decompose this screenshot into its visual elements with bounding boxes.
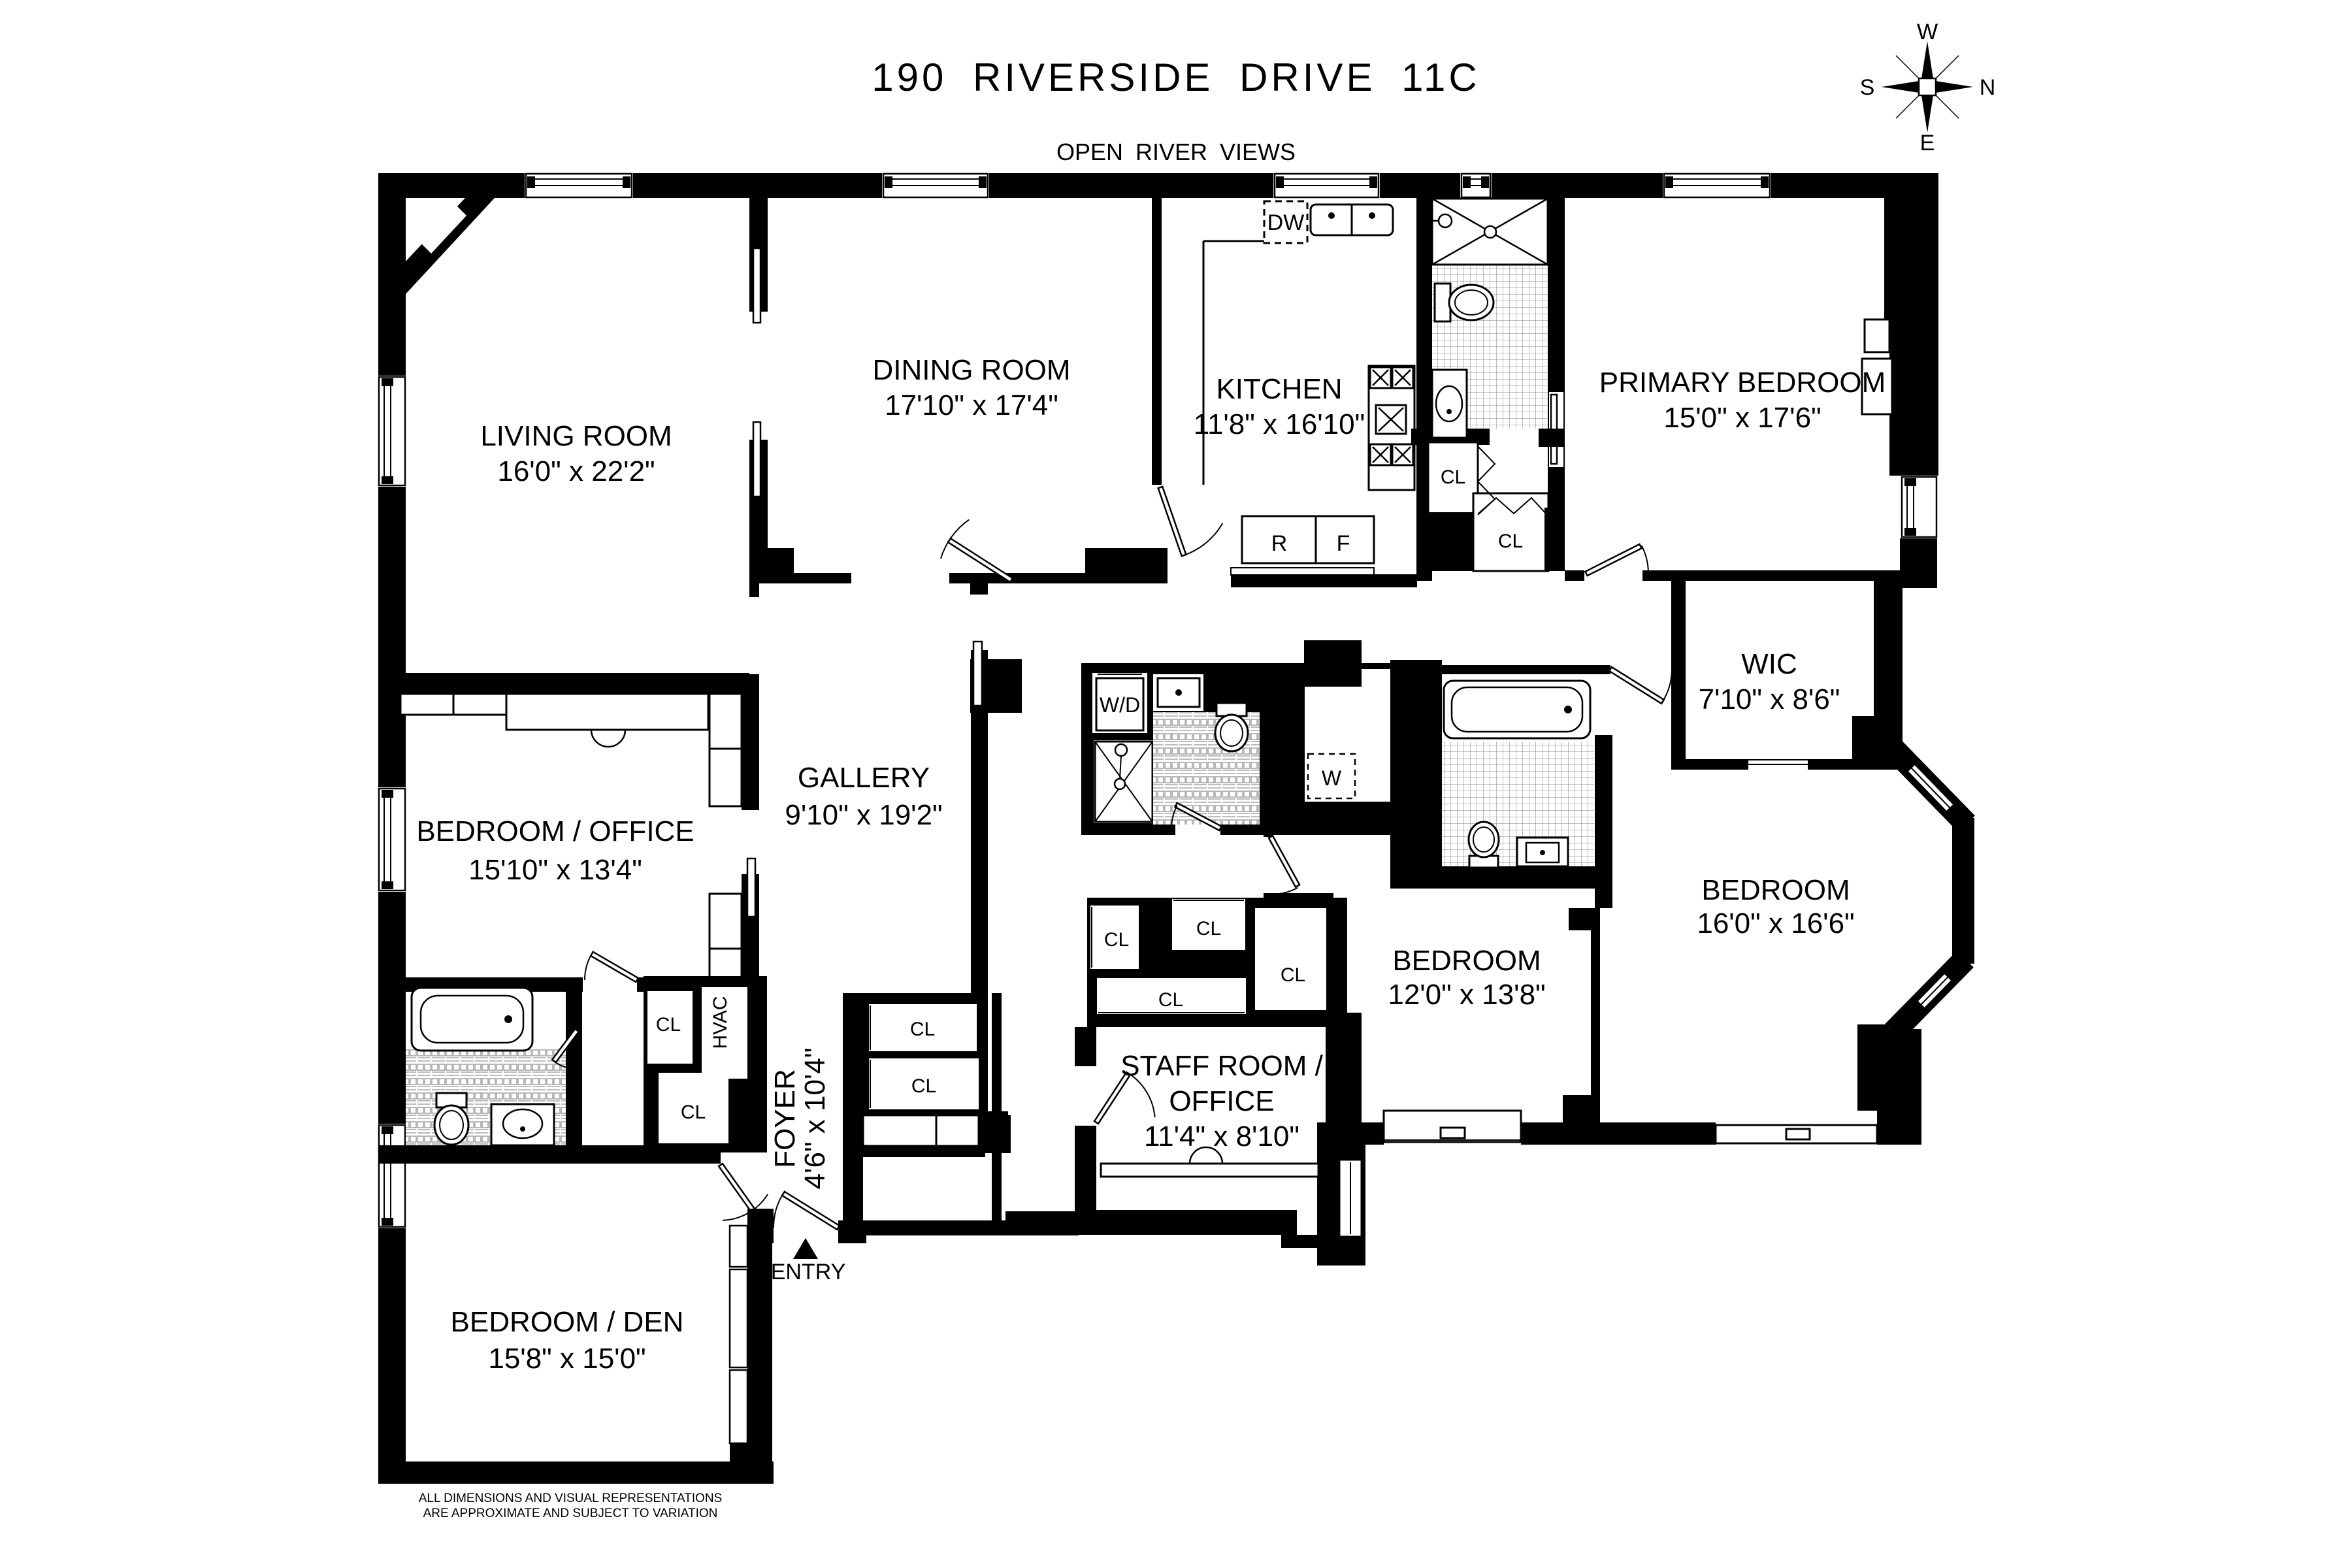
svg-text:CL: CL	[1196, 918, 1221, 939]
svg-text:LIVING ROOM: LIVING ROOM	[480, 420, 672, 452]
svg-text:CL: CL	[1441, 466, 1465, 488]
svg-text:CL: CL	[681, 1102, 706, 1123]
svg-text:W: W	[1917, 20, 1938, 44]
svg-text:N: N	[1980, 75, 1996, 100]
svg-text:FOYER: FOYER	[769, 1069, 801, 1168]
svg-text:CL: CL	[1158, 989, 1183, 1011]
svg-text:R: R	[1271, 531, 1288, 556]
svg-text:12'0" x 13'8": 12'0" x 13'8"	[1388, 979, 1545, 1011]
svg-text:DW: DW	[1267, 210, 1305, 235]
svg-text:S: S	[1860, 75, 1875, 100]
svg-text:ALL DIMENSIONS AND VISUAL REPR: ALL DIMENSIONS AND VISUAL REPRESENTATION…	[419, 1492, 723, 1505]
svg-text:15'8" x 15'0": 15'8" x 15'0"	[488, 1343, 645, 1375]
svg-text:GALLERY: GALLERY	[798, 762, 930, 794]
svg-text:HVAC: HVAC	[710, 996, 731, 1049]
svg-text:E: E	[1920, 131, 1935, 155]
svg-text:CL: CL	[910, 1019, 935, 1040]
svg-text:CL: CL	[911, 1075, 936, 1097]
svg-text:ARE APPROXIMATE AND SUBJECT TO: ARE APPROXIMATE AND SUBJECT TO VARIATION	[423, 1507, 718, 1520]
svg-text:CL: CL	[1104, 929, 1129, 951]
svg-text:BEDROOM / OFFICE: BEDROOM / OFFICE	[416, 815, 694, 847]
svg-text:STAFF ROOM /: STAFF ROOM /	[1120, 1050, 1323, 1082]
svg-text:BEDROOM: BEDROOM	[1392, 945, 1541, 977]
svg-text:11'4" x 8'10": 11'4" x 8'10"	[1144, 1120, 1299, 1152]
svg-text:CL: CL	[656, 1014, 681, 1036]
svg-text:4'6" x 10'4": 4'6" x 10'4"	[799, 1048, 831, 1190]
svg-text:ENTRY: ENTRY	[771, 1260, 846, 1284]
svg-text:15'10" x 13'4": 15'10" x 13'4"	[468, 854, 642, 886]
svg-text:11'8" x 16'10": 11'8" x 16'10"	[1194, 408, 1365, 440]
svg-text:DINING ROOM: DINING ROOM	[872, 354, 1070, 386]
svg-text:15'0" x 17'6": 15'0" x 17'6"	[1663, 402, 1821, 434]
svg-text:BEDROOM / DEN: BEDROOM / DEN	[451, 1306, 684, 1338]
svg-text:17'10" x 17'4": 17'10" x 17'4"	[885, 389, 1058, 421]
svg-text:BEDROOM: BEDROOM	[1701, 874, 1850, 906]
svg-text:OFFICE: OFFICE	[1169, 1085, 1274, 1117]
svg-text:16'0" x 16'6": 16'0" x 16'6"	[1697, 907, 1854, 939]
svg-text:F: F	[1337, 531, 1350, 556]
svg-text:WIC: WIC	[1741, 648, 1797, 680]
svg-text:OPEN RIVER VIEWS: OPEN RIVER VIEWS	[1056, 139, 1296, 165]
svg-text:KITCHEN: KITCHEN	[1216, 373, 1342, 405]
svg-text:PRIMARY BEDROOM: PRIMARY BEDROOM	[1599, 367, 1886, 399]
svg-text:7'10" x 8'6": 7'10" x 8'6"	[1699, 683, 1840, 715]
svg-text:190 RIVERSIDE DRIVE 11C: 190 RIVERSIDE DRIVE 11C	[872, 56, 1480, 99]
svg-text:16'0" x 22'2": 16'0" x 22'2"	[497, 455, 655, 487]
svg-text:CL: CL	[1281, 964, 1305, 986]
svg-text:W/D: W/D	[1100, 693, 1140, 717]
svg-text:9'10" x 19'2": 9'10" x 19'2"	[785, 799, 942, 831]
svg-text:CL: CL	[1498, 531, 1523, 552]
svg-text:W: W	[1322, 766, 1342, 790]
